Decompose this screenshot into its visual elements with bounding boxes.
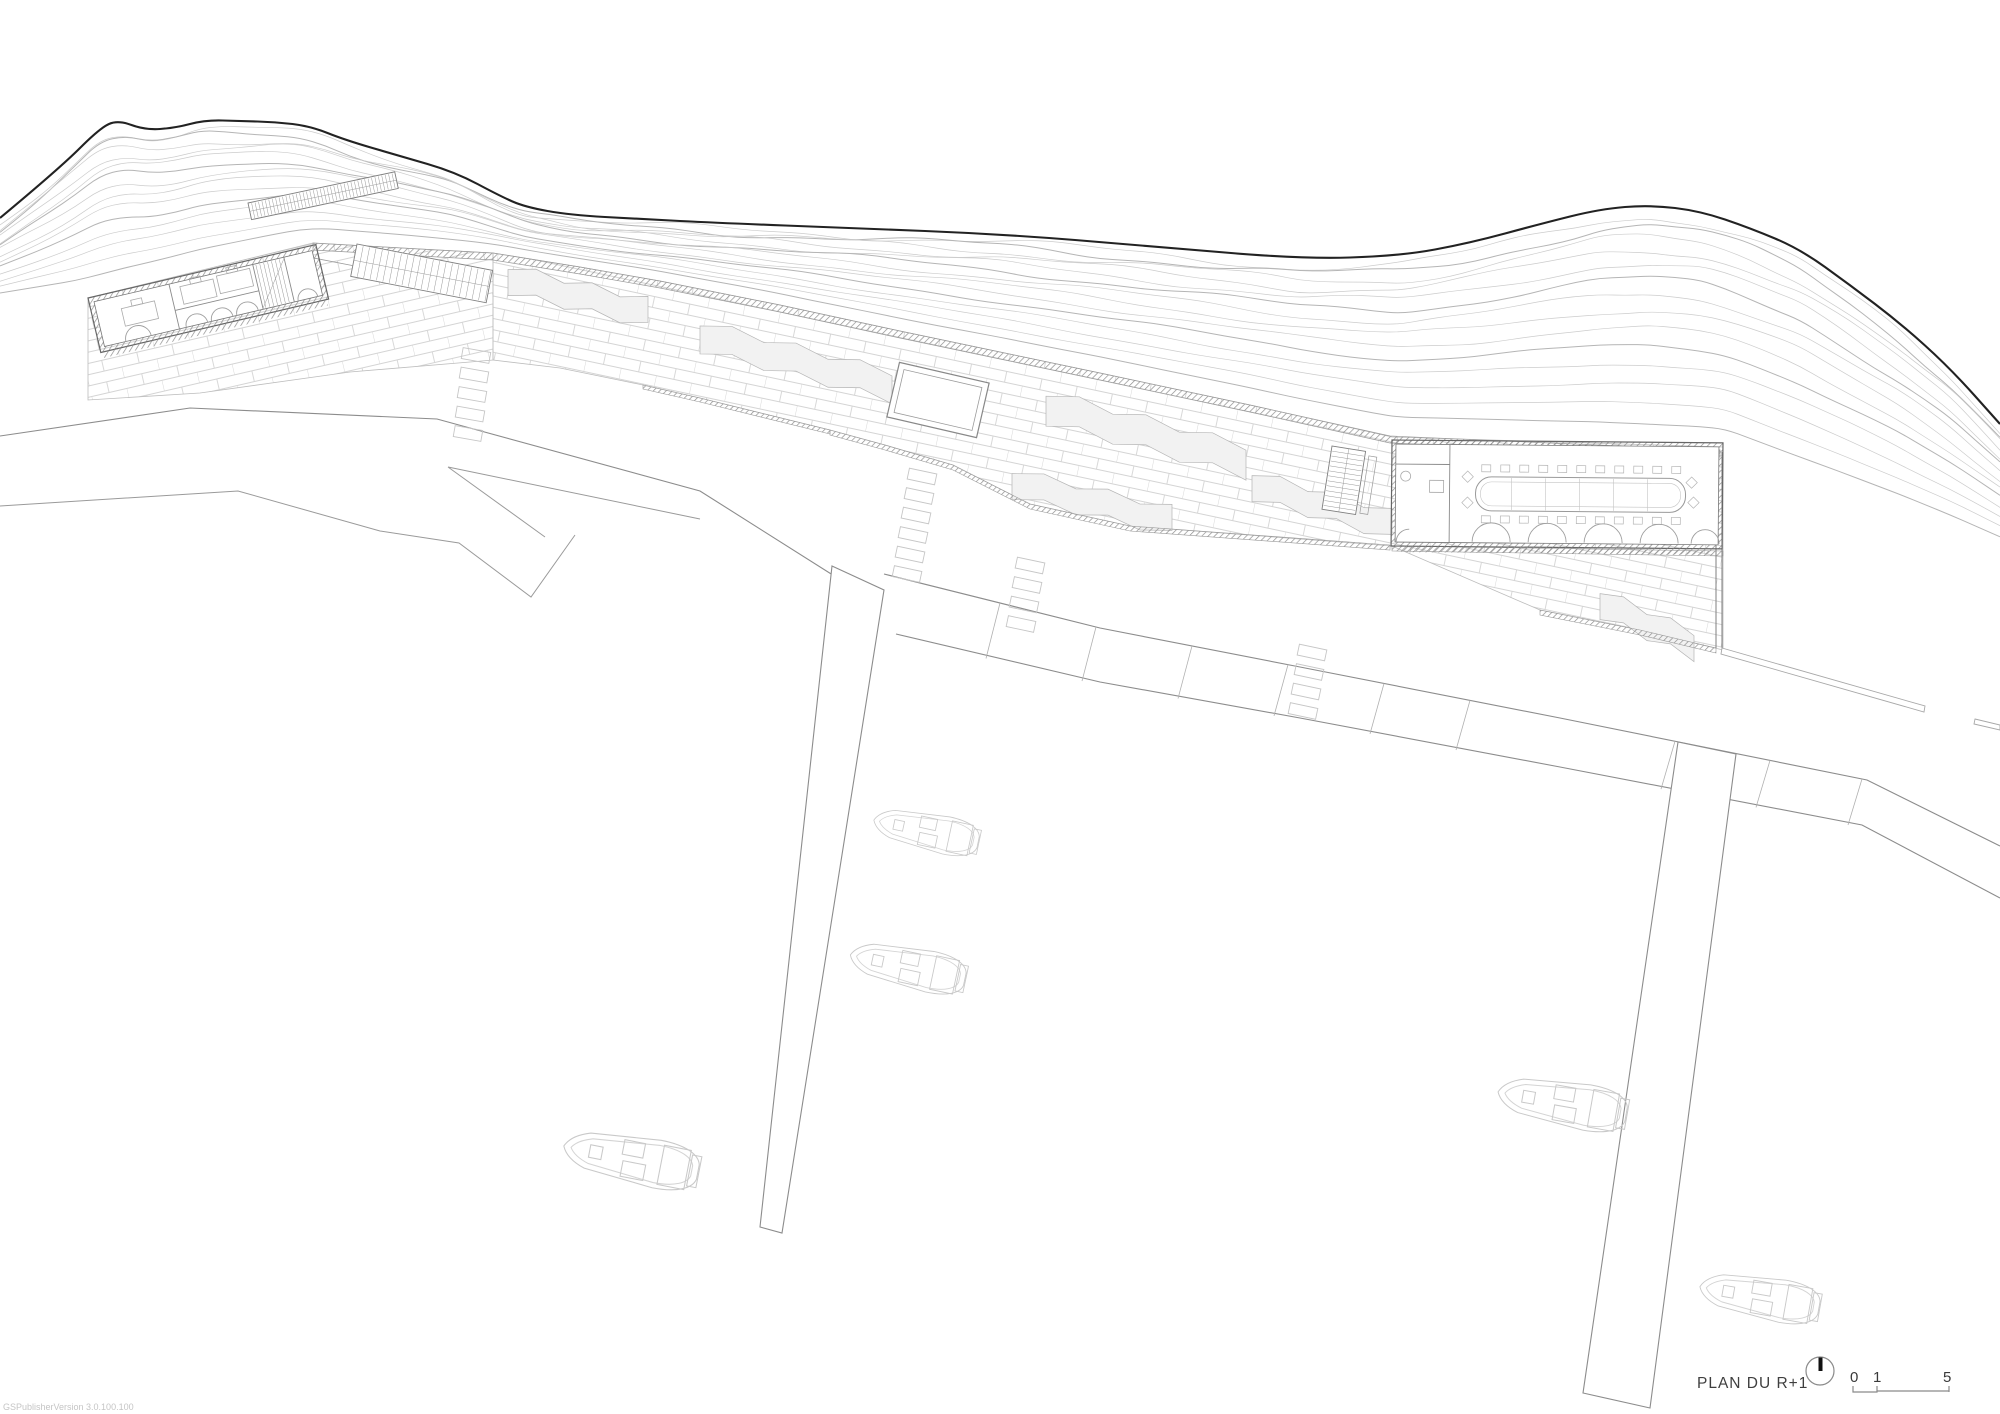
promontory-edge: [0, 491, 575, 597]
east-jetty-wall-segment: [1974, 719, 2000, 730]
boat-3: [559, 1122, 703, 1196]
boat-ramp-wedge: [448, 467, 700, 537]
pier-west: [760, 566, 884, 1233]
east-building: [1391, 440, 1723, 555]
mooring-ghost-dash: [895, 546, 925, 563]
mooring-ghost-dash: [892, 566, 922, 583]
dock-band-top-edge: [884, 574, 2000, 846]
mooring-ghost-dash: [1015, 557, 1045, 574]
scale-bar-line: [1853, 1386, 1949, 1392]
scale-label-5: 5: [1943, 1369, 1951, 1386]
mooring-ghost-dash: [1012, 577, 1042, 594]
dock-band-joint: [1082, 627, 1096, 681]
watermark-label: GSPublisherVersion 3.0.100.100: [3, 1402, 134, 1412]
dock-band-bottom-edge: [896, 634, 2000, 898]
piers: [760, 566, 1736, 1408]
stair-stringer: [250, 180, 397, 211]
east-jetty-wall: [1721, 648, 1925, 712]
boat-4: [1494, 1069, 1631, 1137]
mooring-ghost-dash: [455, 406, 484, 422]
east-building-inner-wall: [1395, 444, 1719, 545]
dock-band-joint: [1848, 779, 1862, 825]
mooring-ghost-dash: [904, 488, 934, 505]
scale-label-0: 0: [1850, 1369, 1858, 1386]
west-quay-edge: [0, 408, 847, 584]
north-arrow-icon: [1806, 1357, 1834, 1385]
boat-5: [1696, 1266, 1823, 1329]
mooring-ghost-dash: [901, 507, 931, 524]
plan-title-label: PLAN DU R+1: [1697, 1375, 1808, 1392]
mooring-ghost-dash: [898, 527, 928, 544]
boat-1: [870, 802, 983, 861]
scale-bar: 0 1 5: [1850, 1369, 1951, 1392]
title-block: PLAN DU R+1 0 1 5: [1697, 1357, 1951, 1392]
dock-band-joint: [1756, 760, 1770, 807]
mooring-ghost-dash: [1006, 616, 1036, 633]
dock-band-joint: [986, 603, 1000, 658]
dock-band-joint: [1370, 683, 1384, 733]
dock-band-joint: [1274, 665, 1288, 716]
mooring-ghost-dash: [457, 387, 486, 403]
mooring-ghost-dash: [1297, 644, 1327, 661]
scale-label-1: 1: [1873, 1369, 1881, 1386]
mooring-ghost-dash: [459, 367, 488, 383]
pier-east: [1583, 742, 1736, 1408]
dock-band-joint: [1178, 646, 1192, 699]
mooring-ghost-dash: [1291, 683, 1321, 700]
boat-2: [846, 935, 970, 1000]
mooring-ghost-dash: [1009, 596, 1039, 613]
dock-band-joint: [1456, 700, 1470, 750]
east-building-body: [1391, 440, 1723, 555]
plan-sheet: PLAN DU R+1 0 1 5 GSPublisherVersion 3.0…: [0, 0, 2000, 1414]
mooring-ghost-dash: [907, 468, 937, 485]
mooring-ghost-dash: [453, 426, 482, 442]
plan-drawing: PLAN DU R+1 0 1 5 GSPublisherVersion 3.0…: [0, 0, 2000, 1414]
